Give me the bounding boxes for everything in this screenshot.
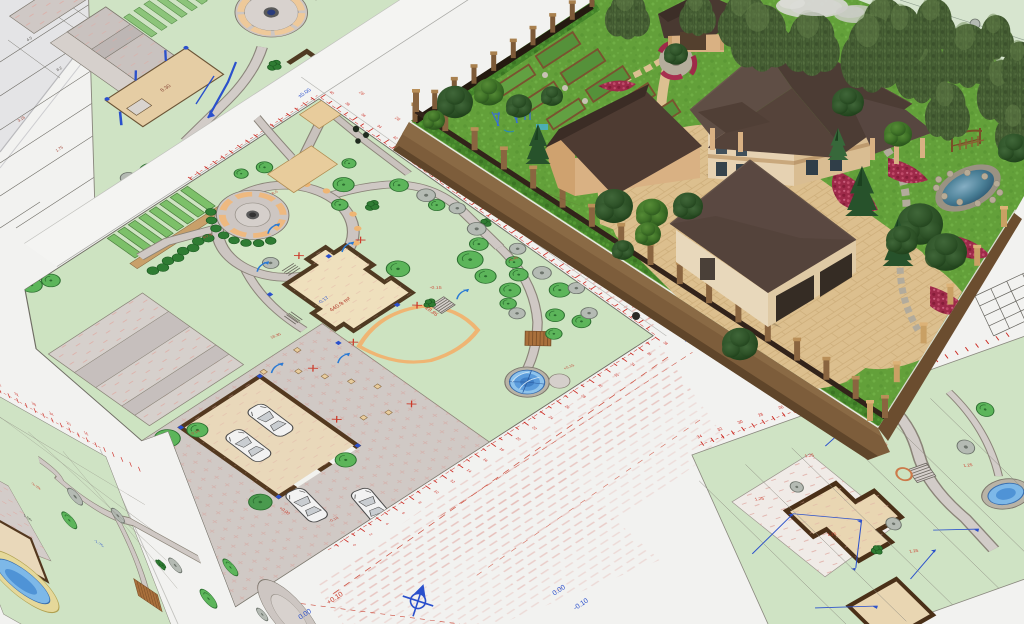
svg-text:-0.15: -0.15: [430, 285, 443, 289]
